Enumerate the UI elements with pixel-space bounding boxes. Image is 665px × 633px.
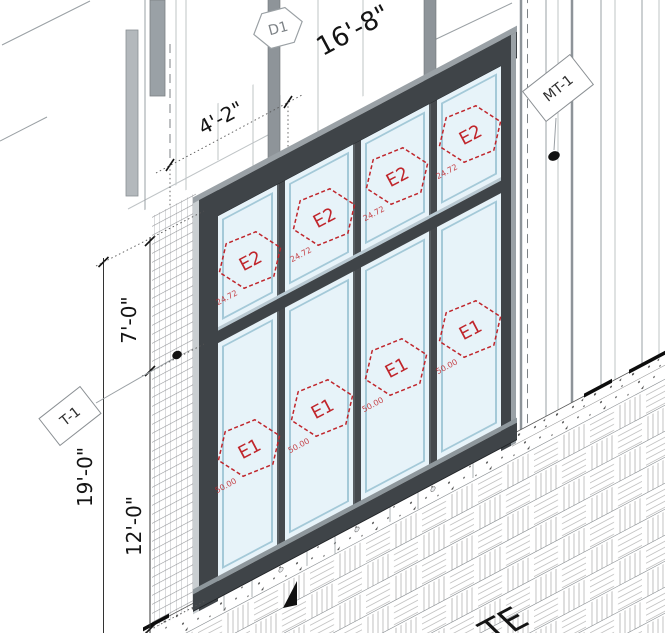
masonry-hatch-band [152, 193, 196, 630]
dim-lower-height[interactable]: 12'-0" [122, 496, 146, 556]
right-jamb-return [511, 32, 516, 446]
drawing-canvas: 7'-0" 12'-0" 19'-0" 4'-2" 16'-8" D1 MT-1… [0, 0, 665, 633]
curtainwall-drawing: 7'-0" 12'-0" 19'-0" 4'-2" 16'-8" D1 MT-1… [0, 0, 665, 633]
bg-panel-strip [126, 30, 138, 196]
dim-opening-width[interactable]: 16'-8" [312, 0, 395, 63]
dim-panel-width[interactable]: 4'-2" [194, 96, 247, 139]
dim-total-height[interactable]: 19'-0" [73, 447, 97, 507]
tag-d1[interactable]: D1 [249, 4, 307, 52]
left-jamb-mullion[interactable] [199, 190, 218, 611]
bg-panel-strip [150, 0, 165, 96]
right-jamb-mullion[interactable] [501, 35, 511, 451]
mt1-leader-dot [547, 149, 562, 162]
left-jamb-return [193, 200, 199, 614]
dim-upper-height[interactable]: 7'-0" [117, 296, 141, 343]
